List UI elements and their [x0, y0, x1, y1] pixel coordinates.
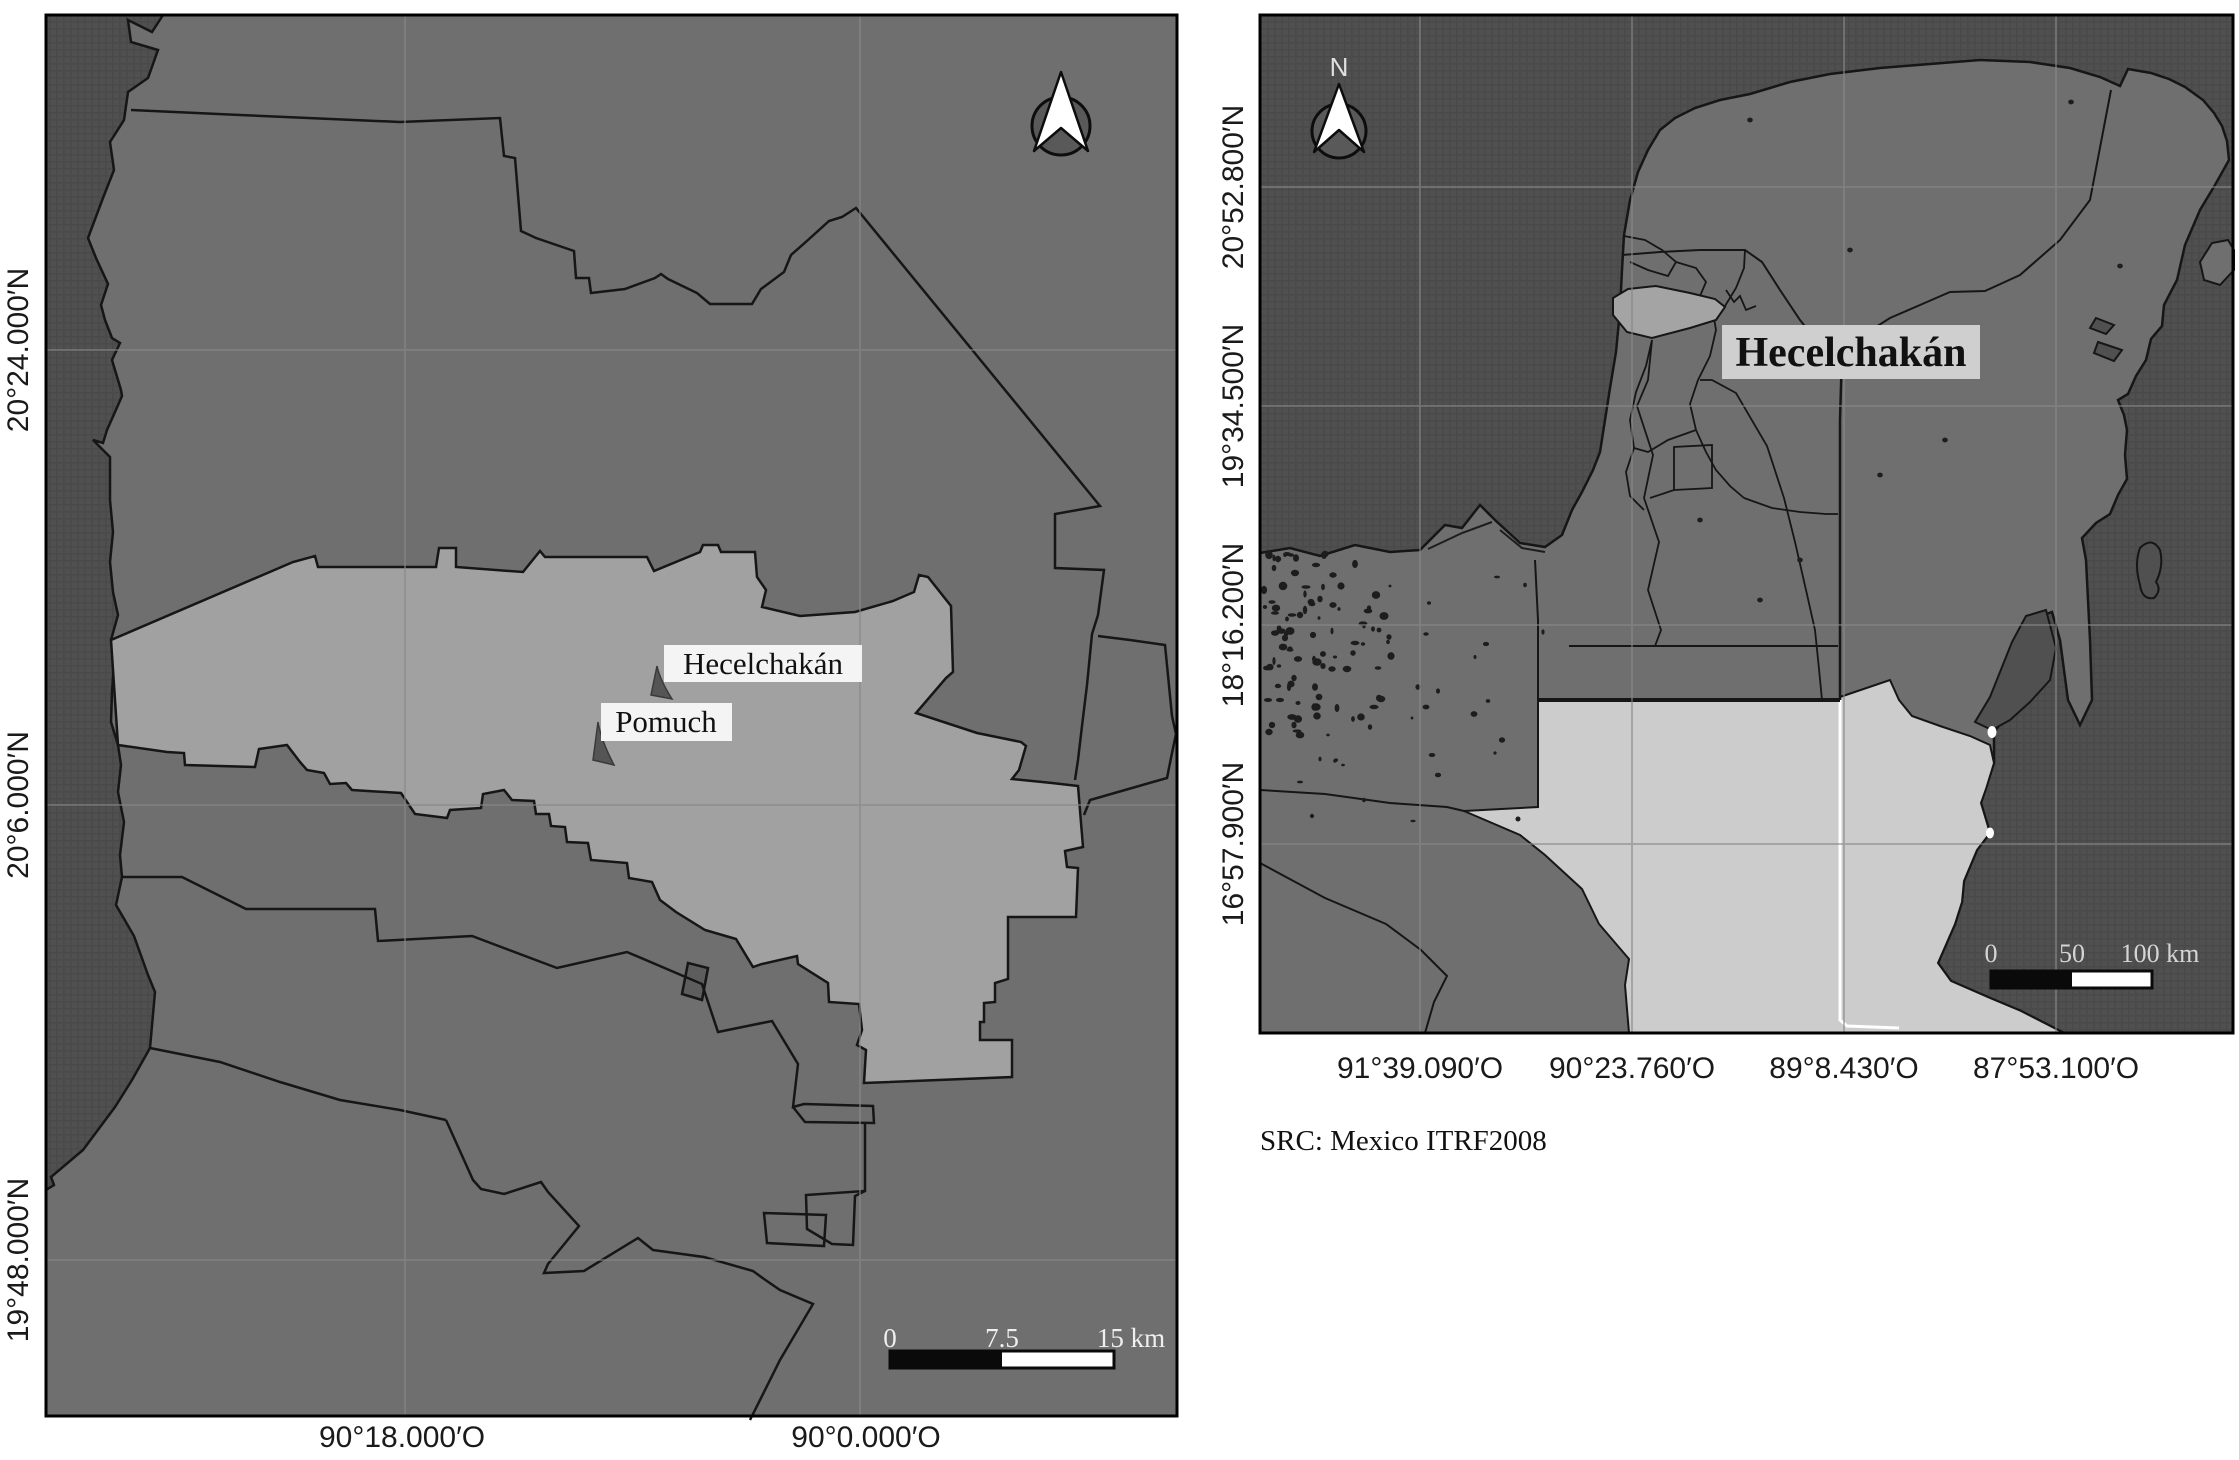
svg-text:7.5: 7.5 — [985, 1323, 1019, 1353]
svg-text:50: 50 — [2059, 939, 2085, 968]
svg-text:90°0.000′O: 90°0.000′O — [791, 1421, 940, 1454]
svg-text:SRC: Mexico ITRF2008: SRC: Mexico ITRF2008 — [1260, 1125, 1547, 1157]
svg-text:0: 0 — [883, 1323, 897, 1353]
svg-text:89°8.430′O: 89°8.430′O — [1769, 1052, 1918, 1085]
svg-text:15 km: 15 km — [1097, 1323, 1165, 1353]
svg-text:90°23.760′O: 90°23.760′O — [1549, 1052, 1715, 1085]
svg-text:Hecelchakán: Hecelchakán — [683, 646, 844, 681]
svg-text:100 km: 100 km — [2121, 939, 2200, 968]
svg-text:Hecelchakán: Hecelchakán — [1736, 330, 1967, 376]
svg-text:20°24.000′N: 20°24.000′N — [2, 268, 35, 432]
svg-text:90°18.000′O: 90°18.000′O — [319, 1421, 485, 1454]
svg-text:20°52.800′N: 20°52.800′N — [1217, 105, 1250, 269]
svg-text:N: N — [1330, 52, 1349, 82]
svg-text:20°6.000′N: 20°6.000′N — [2, 731, 35, 879]
svg-text:Pomuch: Pomuch — [615, 704, 717, 739]
svg-text:0: 0 — [1985, 939, 1998, 968]
svg-text:19°34.500′N: 19°34.500′N — [1217, 324, 1250, 488]
svg-text:91°39.090′O: 91°39.090′O — [1337, 1052, 1503, 1085]
svg-text:18°16.200′N: 18°16.200′N — [1217, 543, 1250, 707]
svg-text:19°48.000′N: 19°48.000′N — [2, 1178, 35, 1342]
svg-text:87°53.100′O: 87°53.100′O — [1973, 1052, 2139, 1085]
svg-text:16°57.900′N: 16°57.900′N — [1217, 762, 1250, 926]
